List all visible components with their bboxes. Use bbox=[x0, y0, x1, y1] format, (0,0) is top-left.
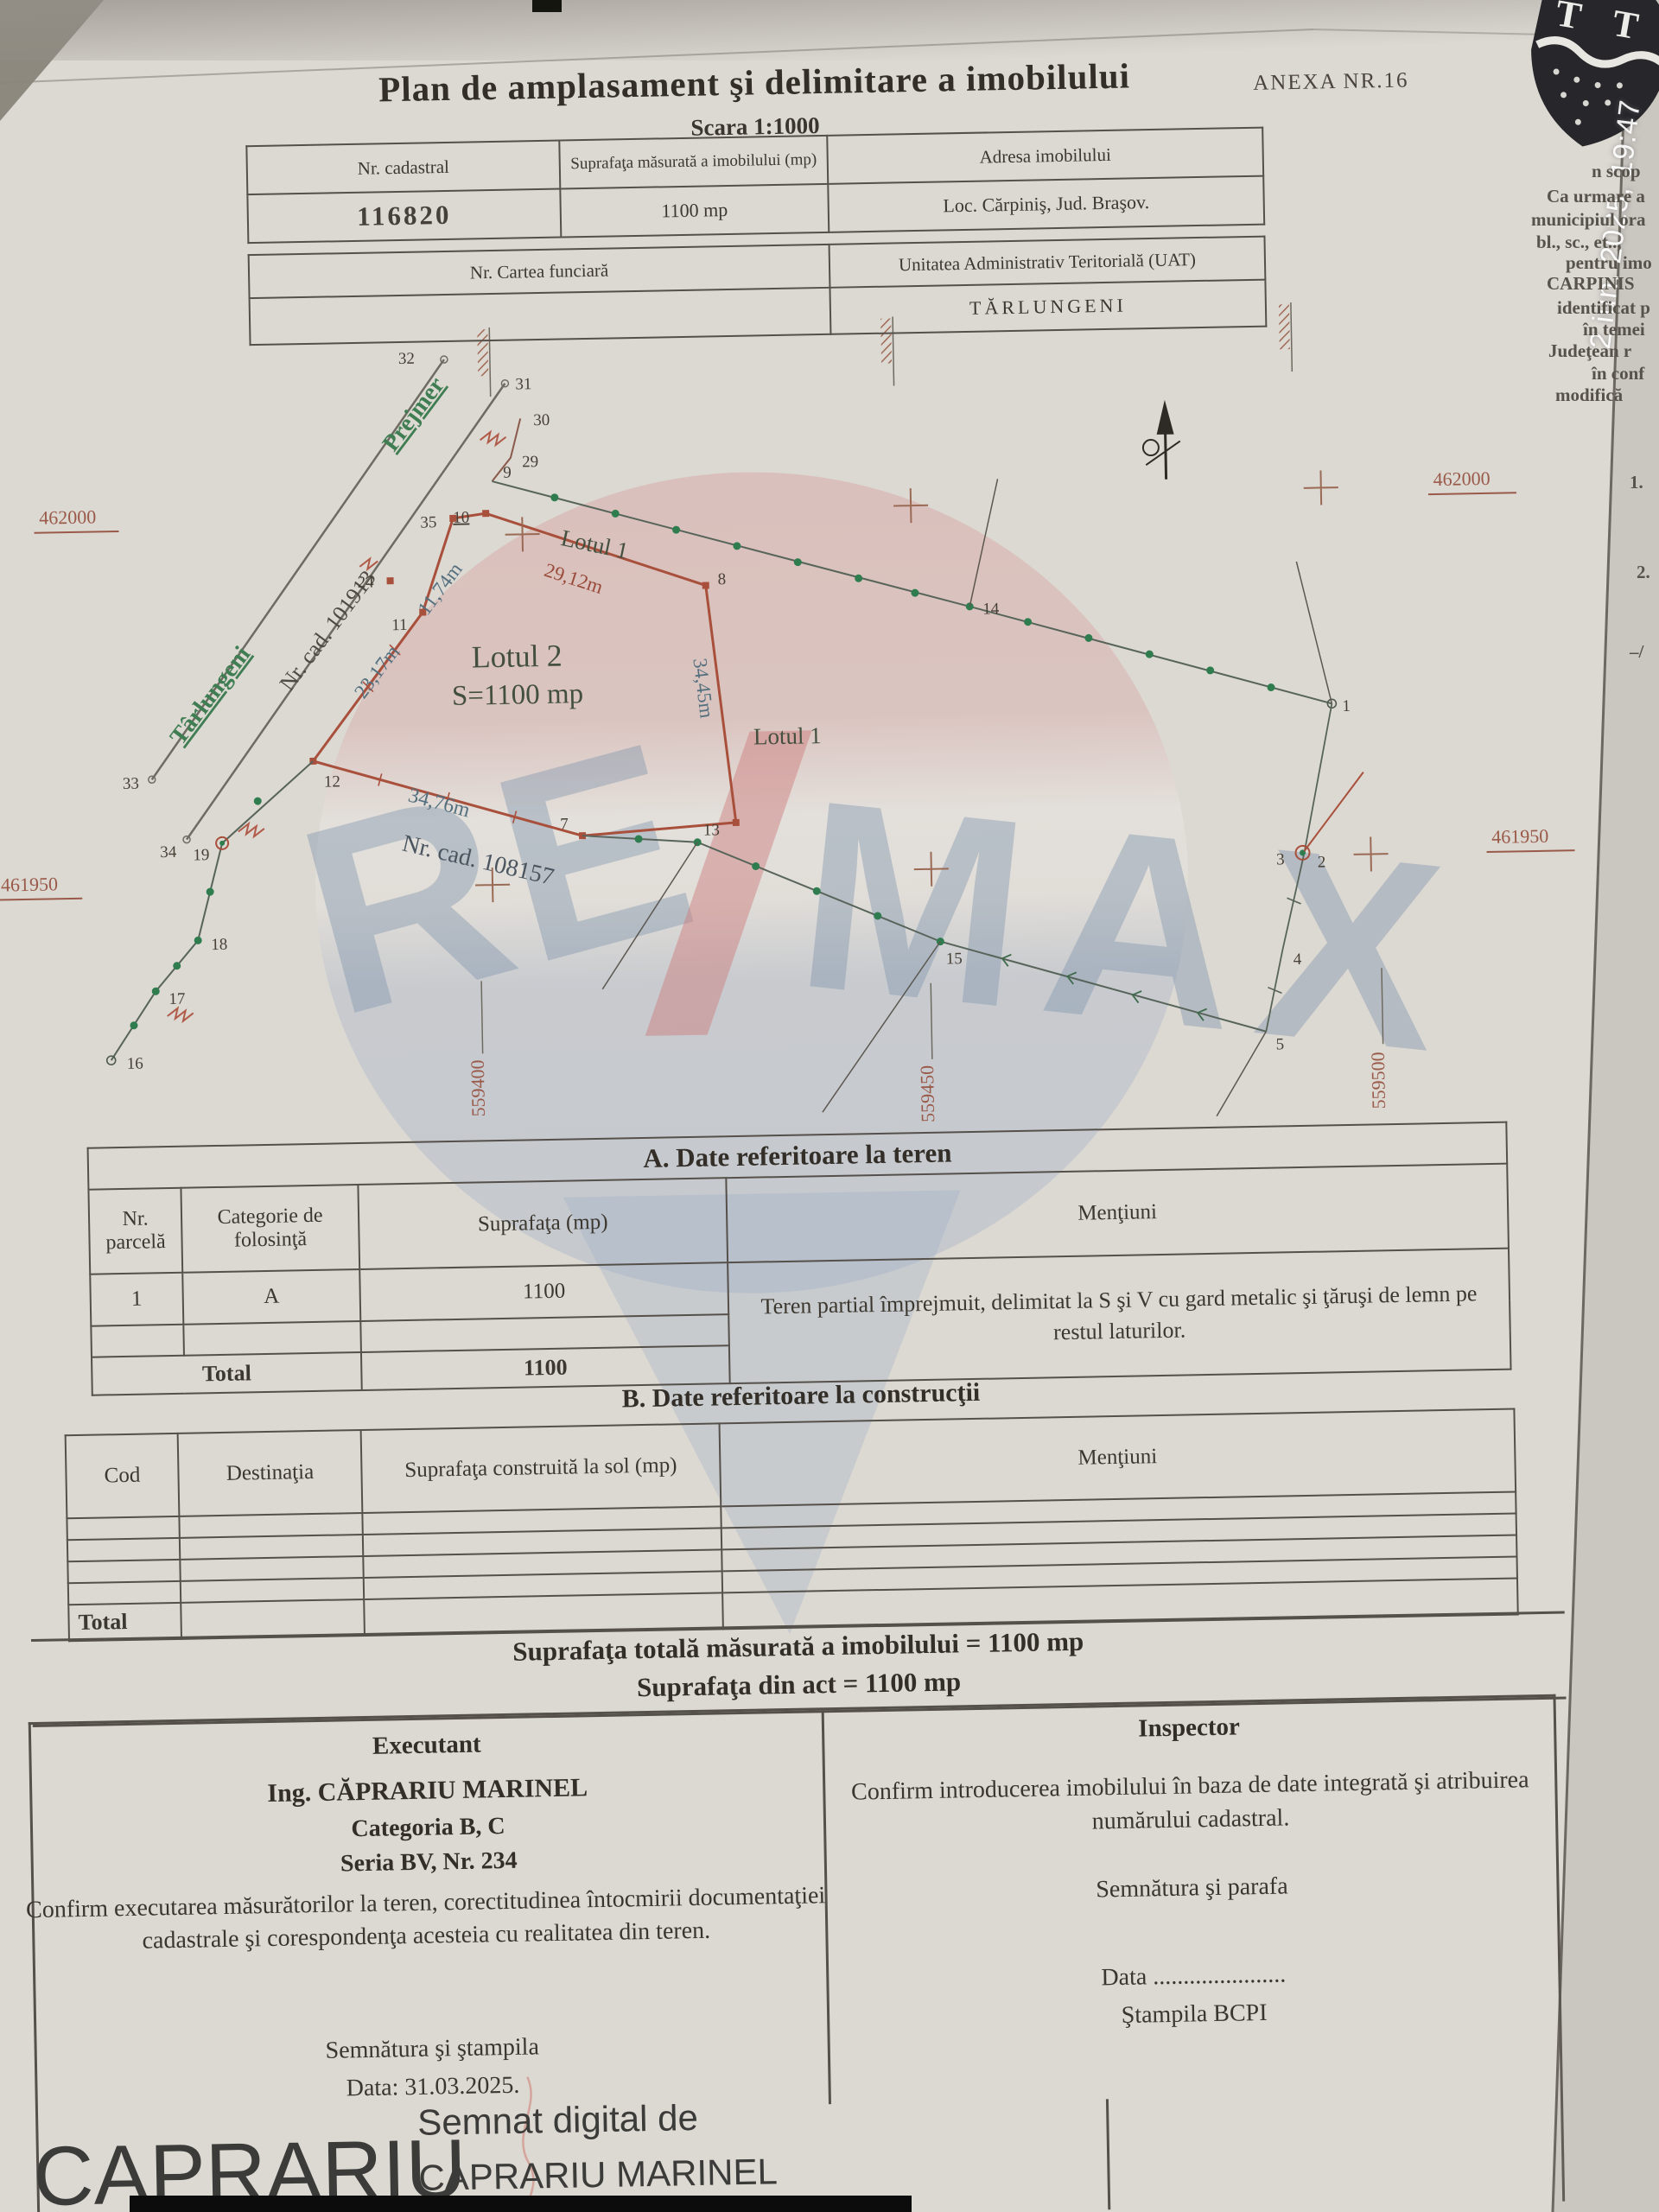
table-a-parcel: 1 bbox=[90, 1273, 183, 1326]
north-arrow-icon bbox=[1142, 399, 1181, 480]
table-a-mentions: Teren partial împrejmuit, delimitat la S… bbox=[728, 1249, 1510, 1384]
side-text: municipiul ora bbox=[1531, 209, 1645, 231]
table-a-header-area: Suprafaţa (mp) bbox=[358, 1178, 728, 1269]
svg-text:11: 11 bbox=[391, 616, 408, 634]
id-value-area: 1100 mp bbox=[560, 184, 829, 238]
table-a-header-category: Categorie de folosinţă bbox=[181, 1185, 359, 1273]
side-text: 2. bbox=[1637, 562, 1650, 583]
svg-text:461950: 461950 bbox=[1491, 825, 1548, 848]
svg-text:10: 10 bbox=[453, 509, 469, 527]
table-a: A. Date referitoare la teren Nr. parcelă… bbox=[87, 1122, 1512, 1396]
svg-text:19: 19 bbox=[193, 846, 209, 864]
table-b-header-mentions: Menţiuni bbox=[720, 1409, 1516, 1507]
inspector-label: Inspector bbox=[824, 1707, 1554, 1749]
side-text: bl., sc., et.., bbox=[1536, 232, 1622, 253]
road-label-prejmer: Prejmer bbox=[378, 372, 450, 457]
uat-header-uat: Unitatea Administrativ Teritorială (UAT) bbox=[829, 237, 1266, 288]
executant-statement: Confirm executarea măsurătorilor la tere… bbox=[23, 1879, 828, 1960]
cadastral-label-101913: Nr. cad. 101913 bbox=[275, 566, 381, 696]
scan-artifact-bottom-bar bbox=[130, 2196, 912, 2212]
executant-name: Ing. CĂPRARIU MARINEL bbox=[32, 1769, 823, 1813]
executant-category: Categoria B, C bbox=[33, 1807, 823, 1849]
side-text: 1. bbox=[1630, 472, 1643, 493]
inspector-statement: Confirm introducerea imobilului în baza … bbox=[844, 1763, 1536, 1843]
table-a-area: 1100 bbox=[359, 1262, 728, 1321]
side-text: în temei bbox=[1583, 319, 1645, 340]
page-title: Plan de amplasament şi delimitare a imob… bbox=[180, 51, 1330, 113]
side-text: în conf bbox=[1592, 363, 1644, 385]
svg-text:461950: 461950 bbox=[1, 873, 58, 895]
table-b-header-code: Cod bbox=[66, 1433, 180, 1518]
digital-signature-line2: CAPRARIU MARINEL bbox=[418, 2151, 778, 2199]
svg-text:31: 31 bbox=[515, 375, 531, 393]
svg-text:16: 16 bbox=[127, 1055, 143, 1073]
executant-signature-label: Semnătura şi ştampila bbox=[37, 2028, 828, 2070]
uat-value-uat: TĂRLUNGENI bbox=[829, 280, 1266, 334]
table-a-category: A bbox=[182, 1269, 360, 1325]
scanned-cadastral-document: RE MAX Plan de amplasament şi delimitare… bbox=[0, 0, 1659, 2212]
side-text: Judeţean r bbox=[1548, 340, 1631, 362]
svg-text:35: 35 bbox=[420, 513, 436, 531]
side-text: CARPINIS bbox=[1547, 273, 1635, 295]
side-text: pentru imo bbox=[1566, 252, 1652, 274]
digital-signature-line1: Semnat digital de bbox=[417, 2097, 698, 2144]
side-text: Ca urmare a bbox=[1547, 186, 1645, 207]
table-b-header-destination: Destinaţia bbox=[178, 1430, 363, 1516]
id-value-address: Loc. Cărpiniş, Jud. Braşov. bbox=[828, 176, 1264, 232]
table-b: Cod Destinaţia Suprafaţa construită la s… bbox=[65, 1408, 1519, 1643]
paper-sheet: RE MAX Plan de amplasament şi delimitare… bbox=[0, 0, 1659, 2212]
side-text: –/ bbox=[1630, 641, 1643, 663]
svg-text:462000: 462000 bbox=[1433, 467, 1490, 490]
svg-text:24: 24 bbox=[357, 574, 374, 592]
point-19-symbol bbox=[216, 837, 228, 849]
id-header-area: Suprafaţa măsurată a imobilului (mp) bbox=[559, 136, 828, 189]
table-a-total-label: Total bbox=[92, 1352, 362, 1395]
side-text: modifică bbox=[1555, 385, 1623, 406]
svg-text:9: 9 bbox=[503, 464, 512, 482]
svg-text:32: 32 bbox=[398, 350, 415, 368]
scan-artifact-top bbox=[532, 0, 562, 12]
svg-text:33: 33 bbox=[123, 775, 139, 793]
svg-text:17: 17 bbox=[168, 990, 185, 1008]
svg-text:462000: 462000 bbox=[39, 505, 96, 528]
id-value-cadastral: 116820 bbox=[247, 189, 561, 244]
boundary-segment-30-29-9 bbox=[491, 418, 521, 481]
svg-text:29: 29 bbox=[522, 453, 538, 471]
road-label-tarlungeni: Târlungeni bbox=[165, 641, 256, 750]
table-a-header-parcel: Nr. parcelă bbox=[88, 1188, 182, 1274]
inspector-signature-label: Semnătura şi parafa bbox=[827, 1868, 1556, 1909]
executant-label: Executant bbox=[31, 1724, 822, 1767]
svg-text:1: 1 bbox=[1342, 697, 1351, 715]
svg-text:30: 30 bbox=[533, 411, 550, 429]
side-text: n scop bbox=[1592, 161, 1641, 182]
svg-text:18: 18 bbox=[211, 936, 227, 954]
side-text: identificat p bbox=[1557, 297, 1650, 319]
annex-label: ANEXA NR.16 bbox=[1253, 69, 1409, 96]
uat-table: Nr. Cartea funciară Unitatea Administrat… bbox=[248, 236, 1268, 346]
uat-value-landbook bbox=[250, 288, 831, 345]
id-header-cadastral: Nr. cadastral bbox=[246, 141, 560, 195]
svg-text:34: 34 bbox=[160, 843, 177, 861]
inspector-date: Data ...................... bbox=[829, 1956, 1558, 1997]
table-a-header-mentions: Menţiuni bbox=[726, 1164, 1509, 1263]
signature-stamp-divider bbox=[1106, 2099, 1110, 2209]
table-b-header-area: Suprafaţa construită la sol (mp) bbox=[361, 1423, 721, 1513]
id-header-address: Adresa imobilului bbox=[827, 128, 1263, 184]
table-b-total-label: Total bbox=[68, 1603, 181, 1641]
id-table: Nr. cadastral Suprafaţa măsurată a imobi… bbox=[245, 127, 1265, 245]
inspector-stamp-label: Ştampila BCPI bbox=[829, 1994, 1559, 2035]
executant-series: Seria BV, Nr. 234 bbox=[34, 1841, 824, 1884]
